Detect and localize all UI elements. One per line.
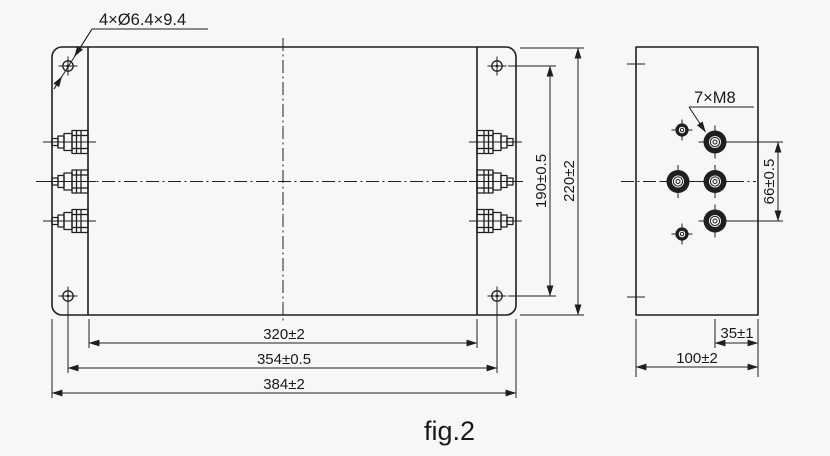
terminal-stud [43,170,96,193]
terminal-m8 [662,165,695,198]
dim-label-overall-height: 220±2 [561,160,578,202]
mounting-hole [488,287,507,306]
terminal-small [672,120,693,141]
drawing-canvas: 4×Ø6.4×9.4 320±2 354±0.5 384±2 190±0.5 [0,0,830,456]
terminal-callout-leader [689,107,754,132]
terminal-small [672,224,693,245]
figure-caption: fig.2 [424,416,475,446]
technical-drawing-page: 4×Ø6.4×9.4 320±2 354±0.5 384±2 190±0.5 [0,0,830,456]
terminal-stud [469,210,522,233]
dim-label-terminal-pitch: 66±0.5 [761,159,778,205]
terminal-stud [43,210,96,233]
terminal-m8 [699,126,732,159]
side-view: 7×M8 66±0.5 35±1 100±2 [621,47,783,377]
dim-label-hole-pitch-width: 354±0.5 [257,351,311,368]
terminal-stud [43,131,96,154]
terminal-callout-label: 7×M8 [694,89,736,107]
terminal-stud [469,170,522,193]
dim-label-depth: 100±2 [676,350,718,367]
mounting-hole [59,287,78,306]
mounting-hole [488,57,507,76]
dim-label-body-width: 320±2 [263,326,305,343]
hole-callout-label: 4×Ø6.4×9.4 [99,11,186,29]
terminal-m8 [699,165,732,198]
terminal-m8 [699,205,732,238]
hole-callout-leader [54,29,208,89]
dim-label-hole-pitch-height: 190±0.5 [533,154,550,208]
front-view: 4×Ø6.4×9.4 320±2 354±0.5 384±2 190±0.5 [36,11,584,398]
dim-label-terminal-offset: 35±1 [720,325,753,342]
terminal-stud [469,131,522,154]
dim-label-overall-width: 384±2 [263,376,305,393]
